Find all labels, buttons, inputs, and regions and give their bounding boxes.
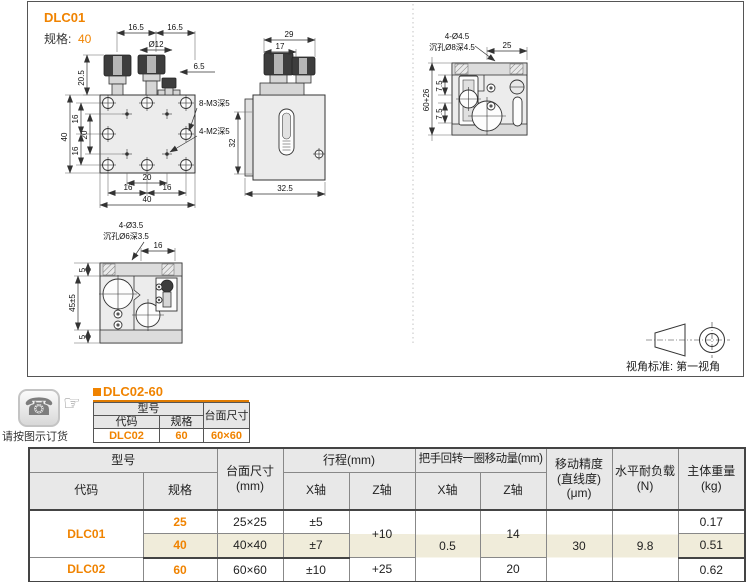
cell-spec-25: 25 [143, 510, 217, 534]
projection-symbol: 视角标准: 第一视角 [626, 322, 730, 373]
mini-table-title-text: DLC02-60 [103, 384, 163, 399]
bottom-view: 16 4-Ø3.5 沉孔Ø6深3.5 5 45±5 5 [68, 221, 182, 343]
dim-5-a: 5 [78, 267, 87, 272]
cell-code-dlc02: DLC02 [29, 558, 143, 582]
engineering-drawing: DLC01 规格: 40 [28, 2, 743, 376]
square-bullet-icon [93, 388, 101, 396]
dim-32-5: 32.5 [277, 184, 293, 193]
header-z-axis-travel: Z轴 [349, 472, 415, 510]
cell-travel-x-25: ±5 [283, 510, 349, 534]
dim-45-5: 45±5 [68, 294, 77, 312]
callout-counterbore-6: 沉孔Ø6深3.5 [103, 232, 149, 241]
dim-25: 25 [503, 41, 512, 50]
order-example-table: 型号 台面尺寸 代码 规格 DLC02 60 60×60 [93, 402, 250, 443]
cell-load-all: 9.8 [612, 510, 678, 582]
cell-spec-60: 60 [143, 558, 217, 582]
dim-5-b: 5 [78, 334, 87, 339]
callout-4-m2: 4-M2深5 [199, 127, 230, 136]
phone-order-icon: ☎ [18, 389, 60, 427]
cell-handle-z-25-40: 14 [480, 510, 546, 558]
dim-20-5: 20.5 [77, 70, 86, 86]
header-x-axis-travel: X轴 [283, 472, 349, 510]
phone-icon: ☎ [24, 396, 54, 420]
dim-29: 29 [285, 30, 294, 39]
header-handle-movement: 把手回转一圈移动量(mm) [415, 448, 546, 472]
projection-standard-label: 视角标准: 第一视角 [626, 359, 720, 373]
dim-16-5-left: 16.5 [128, 23, 144, 32]
mini-header-code: 代码 [94, 416, 160, 429]
dim-7-5-b: 7.5 [435, 108, 444, 120]
spec-label: 规格: [44, 31, 71, 46]
table-row-dlc01-25: DLC01 25 25×25 ±5 +10 0.5 14 30 9.8 0.17 [29, 510, 745, 534]
header-size: 台面尺寸 (mm) [217, 448, 283, 510]
dim-20-bottom: 20 [143, 173, 152, 182]
mini-header-spec: 规格 [160, 416, 204, 429]
cell-size-40: 40×40 [217, 534, 283, 558]
cell-travel-z-25-40: +10 [349, 510, 415, 558]
callout-counterbore-8: 沉孔Ø8深4.5 [429, 43, 475, 52]
cell-travel-z-60: +25 [349, 558, 415, 582]
header-travel: 行程(mm) [283, 448, 415, 472]
dim-16-bot-b: 16 [163, 183, 172, 192]
header-code: 代码 [29, 472, 143, 510]
mini-cell-spec: 60 [160, 429, 204, 443]
cell-size-25: 25×25 [217, 510, 283, 534]
part-number-title: DLC01 [44, 10, 85, 25]
cell-size-60: 60×60 [217, 558, 283, 582]
header-spec: 规格 [143, 472, 217, 510]
dim-16-bot-a: 16 [124, 183, 133, 192]
cell-travel-x-60: ±10 [283, 558, 349, 582]
callout-8-m3: 8-M3深5 [199, 99, 230, 108]
spec-value: 40 [78, 32, 92, 46]
mini-header-model: 型号 [94, 403, 204, 416]
cell-handle-z-60: 20 [480, 558, 546, 582]
callout-4-dia3-5: 4-Ø3.5 [119, 221, 144, 230]
dim-17: 17 [276, 42, 285, 51]
dim-16-a: 16 [71, 114, 80, 123]
cell-precision-all: 30 [546, 510, 612, 582]
dim-40-bottom: 40 [143, 195, 152, 204]
cell-spec-40: 40 [143, 534, 217, 558]
header-load: 水平耐负载 (N) [612, 448, 678, 510]
dim-32: 32 [228, 138, 237, 147]
front-view: 16.5 16.5 Ø12 20.5 6.5 40 16 20 [60, 23, 230, 208]
side-view: 29 17 32 32.5 [228, 30, 325, 196]
cell-weight-60: 0.62 [678, 558, 745, 582]
header-z-axis-handle: Z轴 [480, 472, 546, 510]
mini-header-size: 台面尺寸 [204, 403, 250, 429]
mini-cell-code: DLC02 [94, 429, 160, 443]
technical-drawing-panel: DLC01 规格: 40 [27, 1, 744, 377]
mini-cell-size: 60×60 [204, 429, 250, 443]
dim-40-left: 40 [60, 132, 69, 141]
header-x-axis-handle: X轴 [415, 472, 480, 510]
mini-table-title: DLC02-60 [93, 384, 249, 402]
cell-handle-x-all: 0.5 [415, 510, 480, 582]
dim-6-5: 6.5 [193, 62, 205, 71]
cell-weight-25: 0.17 [678, 510, 745, 534]
callout-4-dia4-5: 4-Ø4.5 [445, 32, 470, 41]
header-precision: 移动精度 (直线度) (μm) [546, 448, 612, 510]
dim-7-5-a: 7.5 [435, 80, 444, 92]
specification-table: 型号 台面尺寸 (mm) 行程(mm) 把手回转一圈移动量(mm) 移动精度 (… [28, 447, 746, 582]
cell-weight-40: 0.51 [678, 534, 745, 558]
cell-code-dlc01: DLC01 [29, 510, 143, 558]
header-model: 型号 [29, 448, 217, 472]
dim-60-26: 60+26 [422, 88, 431, 111]
pointing-hand-icon: ☞ [63, 391, 81, 416]
dim-dia12: Ø12 [148, 40, 164, 49]
top-view: 25 4-Ø4.5 沉孔Ø8深4.5 60+26 7.5 7.5 [422, 32, 527, 141]
dim-16-b: 16 [71, 146, 80, 155]
dim-16-top: 16 [154, 241, 163, 250]
order-note: 请按图示订货 [2, 428, 94, 444]
catalog-page: DLC01 规格: 40 [0, 0, 750, 582]
header-weight: 主体重量 (kg) [678, 448, 745, 510]
cell-travel-x-40: ±7 [283, 534, 349, 558]
dim-16-5-right: 16.5 [167, 23, 183, 32]
